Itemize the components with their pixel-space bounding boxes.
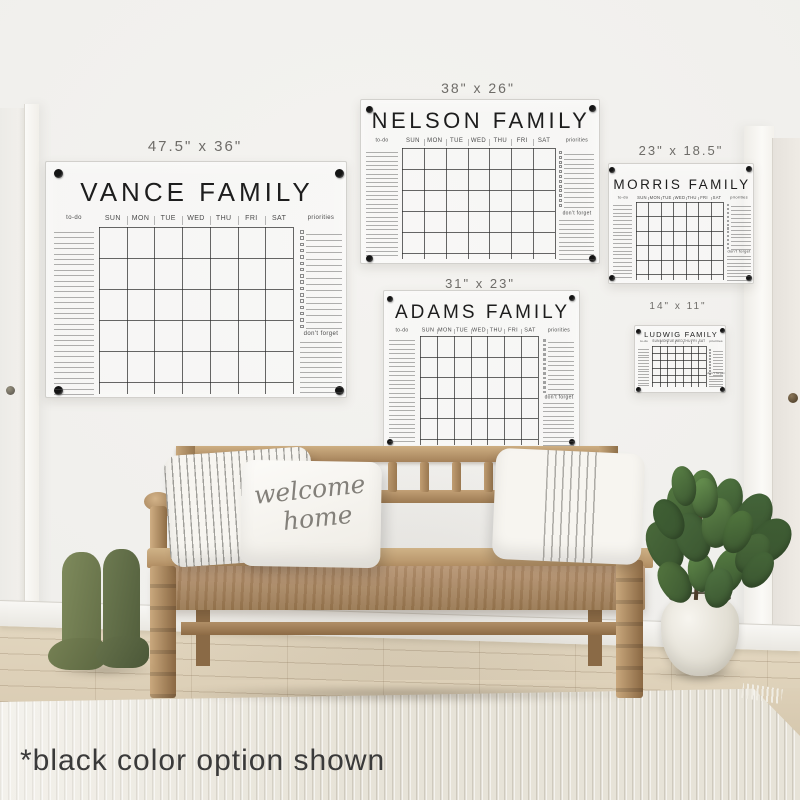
dont-forget-line — [543, 416, 574, 417]
todo-line — [638, 363, 649, 364]
dont-forget-line — [559, 259, 594, 260]
day-label: SAT — [272, 215, 286, 222]
priority-checkbox — [727, 216, 729, 218]
dont-forget-line — [709, 379, 723, 380]
priority-line — [564, 202, 594, 203]
grid-column-line — [99, 227, 100, 394]
grid-column-line — [698, 202, 699, 280]
grid-row-line — [99, 289, 293, 290]
day-label: TUE — [668, 340, 675, 343]
todo-line — [613, 224, 632, 225]
day-separator — [698, 341, 699, 344]
dont-forget-line — [559, 254, 594, 255]
todo-line — [54, 259, 94, 260]
grid-column-line — [454, 336, 455, 445]
day-separator — [698, 197, 699, 200]
day-separator — [487, 329, 488, 334]
grid-column-line — [691, 346, 692, 387]
priority-line — [713, 360, 723, 361]
left-door-frame — [24, 104, 39, 644]
dont-forget-line — [559, 242, 594, 243]
dont-forget-line — [559, 237, 594, 238]
todo-line — [54, 237, 94, 238]
priority-checkbox — [727, 239, 729, 241]
day-separator — [265, 216, 266, 225]
mount-dot — [54, 169, 63, 178]
welcome-home-text: welcome home — [239, 468, 384, 540]
todo-line — [366, 255, 398, 256]
todo-line — [366, 238, 398, 239]
todo-line — [389, 410, 415, 411]
todo-line — [613, 216, 632, 217]
priorities-label: priorities — [565, 138, 587, 143]
calendar-panel-morris: MORRIS FAMILYSUNMONTUEWEDTHUFRISATto-dop… — [608, 163, 754, 284]
priority-checkbox — [559, 175, 562, 178]
grid-column-line — [652, 346, 653, 387]
dont-forget-line — [543, 437, 574, 438]
day-label: THU — [216, 215, 232, 222]
priority-line — [713, 351, 723, 352]
priority-checkbox — [709, 349, 711, 351]
todo-line — [638, 385, 649, 386]
priority-checkbox — [300, 325, 304, 329]
day-separator — [504, 329, 505, 334]
boot-right-foot — [96, 636, 149, 668]
priority-line — [306, 315, 343, 316]
priority-line — [548, 356, 574, 357]
todo-line — [613, 258, 632, 259]
priority-checkbox — [559, 156, 562, 159]
day-label: SAT — [712, 196, 721, 200]
priority-checkbox — [300, 268, 304, 272]
priority-line — [731, 230, 751, 231]
day-separator — [489, 139, 490, 146]
day-separator — [691, 341, 692, 344]
day-label: MON — [438, 328, 452, 334]
todo-line — [638, 360, 649, 361]
todo-line — [54, 291, 94, 292]
dont-forget-line — [543, 428, 574, 429]
pillow-striped-right — [492, 448, 646, 565]
dont-forget-line — [727, 276, 751, 277]
calendar-title: NELSON FAMILY — [372, 108, 591, 134]
todo-line — [54, 318, 94, 319]
dont-forget-line — [727, 263, 751, 264]
day-separator — [675, 341, 676, 344]
todo-line — [638, 369, 649, 370]
priority-line — [713, 369, 723, 370]
grid-column-line — [154, 227, 155, 394]
todo-line — [54, 367, 94, 368]
todo-line — [389, 428, 415, 429]
priority-line — [306, 322, 343, 323]
mount-dot — [335, 169, 344, 178]
dont-forget-line — [559, 233, 594, 234]
priority-checkbox — [727, 220, 729, 222]
mount-dot — [720, 328, 725, 333]
calendar-size-label: 14" x 11" — [649, 301, 706, 312]
dont-forget-line — [559, 224, 594, 225]
priority-checkbox — [727, 204, 729, 206]
todo-line — [366, 186, 398, 187]
priority-checkbox — [543, 386, 546, 389]
priority-line — [713, 354, 723, 355]
todo-line — [54, 362, 94, 363]
day-label: SAT — [538, 138, 550, 144]
grid-column-line — [706, 346, 707, 387]
priority-line — [731, 245, 751, 246]
todo-line — [366, 229, 398, 230]
day-label: THU — [687, 196, 696, 200]
dont-forget-line — [300, 382, 342, 383]
todo-line — [613, 205, 632, 206]
priority-line — [548, 370, 574, 371]
todo-line — [54, 351, 94, 352]
priority-line — [731, 218, 751, 219]
todo-label: to-do — [617, 196, 627, 200]
todo-line — [366, 152, 398, 153]
day-separator — [648, 197, 649, 200]
priority-line — [731, 237, 751, 238]
grid-column-line — [487, 336, 488, 445]
mount-dot — [636, 387, 641, 392]
priority-line — [713, 363, 723, 364]
todo-line — [638, 357, 649, 358]
day-separator — [182, 216, 183, 225]
todo-line — [54, 286, 94, 287]
todo-line — [54, 394, 94, 395]
todo-line — [366, 251, 398, 252]
todo-line — [389, 397, 415, 398]
priority-checkbox — [543, 353, 546, 356]
priority-checkbox — [300, 243, 304, 247]
todo-line — [613, 232, 632, 233]
priority-line — [306, 309, 343, 310]
priority-checkbox — [727, 224, 729, 226]
todo-line — [389, 349, 415, 350]
todo-line — [366, 178, 398, 179]
priority-checkbox — [543, 381, 546, 384]
calendar-title: ADAMS FAMILY — [395, 302, 570, 324]
todo-line — [54, 383, 94, 384]
day-label: TUE — [662, 196, 671, 200]
day-separator — [471, 329, 472, 334]
todo-line — [389, 388, 415, 389]
priority-checkbox — [559, 194, 562, 197]
day-separator — [661, 197, 662, 200]
grid-column-line — [504, 336, 505, 445]
priority-checkbox — [709, 358, 711, 360]
dont-forget-line — [300, 347, 342, 348]
day-separator — [437, 329, 438, 334]
todo-line — [366, 242, 398, 243]
todo-line — [389, 340, 415, 341]
todo-line — [54, 308, 94, 309]
todo-line — [389, 375, 415, 376]
priority-checkbox — [727, 231, 729, 233]
grid-column-line — [673, 202, 674, 280]
priorities-label: priorities — [308, 215, 335, 221]
todo-line — [638, 355, 649, 356]
todo-line — [366, 217, 398, 218]
grid-column-line — [468, 148, 469, 259]
grid-column-line — [636, 202, 637, 280]
grid-column-line — [667, 346, 668, 387]
grid-column-line — [533, 148, 534, 259]
day-separator — [424, 139, 425, 146]
todo-line — [54, 254, 94, 255]
bench-front-leg-right — [616, 560, 643, 698]
todo-line — [54, 302, 94, 303]
day-label: SUN — [652, 340, 659, 343]
day-label: TUE — [161, 215, 176, 222]
mount-dot — [387, 296, 393, 302]
priority-checkbox — [709, 361, 711, 363]
calendar-title: VANCE FAMILY — [80, 177, 313, 208]
priority-line — [306, 297, 343, 298]
priority-checkbox — [543, 372, 546, 375]
priority-checkbox — [543, 363, 546, 366]
grid-row-line — [99, 382, 293, 383]
priority-checkbox — [559, 180, 562, 183]
calendar-panel-ludwig: LUDWIG FAMILYSUNMONTUEWEDTHUFRISATto-dop… — [634, 325, 726, 393]
todo-line — [54, 329, 94, 330]
day-separator — [683, 341, 684, 344]
dont-forget-line — [300, 387, 342, 388]
priority-line — [306, 284, 343, 285]
priorities-label: priorities — [730, 196, 748, 200]
dont-forget-line — [300, 352, 342, 353]
priority-checkbox — [709, 352, 711, 354]
todo-line — [54, 313, 94, 314]
todo-line — [366, 208, 398, 209]
todo-line — [54, 389, 94, 390]
priority-line — [731, 214, 751, 215]
priority-line — [564, 178, 594, 179]
todo-line — [366, 174, 398, 175]
priority-line — [564, 164, 594, 165]
todo-line — [613, 243, 632, 244]
dont-forget-line — [559, 229, 594, 230]
priority-line — [306, 240, 343, 241]
calendar-size-label: 23" x 18.5" — [639, 143, 724, 158]
priority-checkbox — [727, 243, 729, 245]
dont-forget-label: don't forget — [304, 331, 339, 337]
todo-line — [366, 182, 398, 183]
priority-line — [306, 278, 343, 279]
todo-line — [389, 362, 415, 363]
todo-line — [54, 345, 94, 346]
grid-column-line — [446, 148, 447, 259]
todo-line — [366, 165, 398, 166]
priority-checkbox — [559, 165, 562, 168]
day-label: FRI — [517, 138, 528, 144]
priority-line — [564, 192, 594, 193]
priority-line — [306, 303, 343, 304]
todo-line — [389, 415, 415, 416]
todo-label: to-do — [375, 138, 388, 143]
grid-column-line — [538, 336, 539, 445]
calendar-panel-nelson: NELSON FAMILYSUNMONTUEWEDTHUFRISATto-dop… — [360, 99, 600, 264]
priority-line — [731, 234, 751, 235]
grid-column-line — [521, 336, 522, 445]
day-label: WED — [187, 215, 205, 222]
bench-spindle — [452, 462, 461, 492]
day-label: FRI — [701, 196, 709, 200]
priority-checkbox — [300, 280, 304, 284]
bench-spindle — [420, 462, 429, 492]
day-separator — [454, 329, 455, 334]
dont-forget-label: don't forget — [562, 211, 591, 216]
todo-line — [389, 384, 415, 385]
mount-dot — [746, 166, 752, 172]
day-label: FRI — [692, 340, 698, 343]
grid-column-line — [127, 227, 128, 394]
grid-column-line — [555, 148, 556, 259]
day-label: WED — [674, 196, 685, 200]
day-label: SUN — [406, 138, 420, 144]
day-label: FRI — [245, 215, 257, 222]
todo-line — [613, 266, 632, 267]
dont-forget-label: don't forget — [727, 250, 750, 254]
todo-line — [389, 424, 415, 425]
grid-column-line — [420, 336, 421, 445]
dont-forget-line — [709, 384, 723, 385]
dont-forget-line — [559, 220, 594, 221]
dont-forget-line — [543, 420, 574, 421]
dont-forget-line — [300, 362, 342, 363]
todo-line — [389, 402, 415, 403]
dont-forget-line — [300, 372, 342, 373]
todo-line — [54, 243, 94, 244]
day-separator — [446, 139, 447, 146]
day-label: WED — [472, 328, 486, 334]
priority-checkbox — [559, 185, 562, 188]
priority-line — [564, 154, 594, 155]
todo-line — [54, 340, 94, 341]
priority-line — [548, 384, 574, 385]
pillow-stripe-band — [542, 450, 600, 563]
grid-column-line — [686, 202, 687, 280]
priority-checkbox — [727, 208, 729, 210]
grid-column-line — [238, 227, 239, 394]
grid-row-line — [99, 320, 293, 321]
day-label: SAT — [524, 328, 535, 334]
dont-forget-line — [300, 392, 342, 393]
priority-checkbox — [300, 299, 304, 303]
priority-checkbox — [559, 161, 562, 164]
day-separator — [127, 216, 128, 225]
priority-checkbox — [300, 306, 304, 310]
priority-checkbox — [727, 212, 729, 214]
todo-line — [389, 366, 415, 367]
bench-spindle — [388, 462, 397, 492]
grid-header-line — [99, 227, 293, 228]
priority-line — [306, 290, 343, 291]
priority-checkbox — [300, 318, 304, 322]
grid-column-line — [265, 227, 266, 394]
day-label: SUN — [105, 215, 121, 222]
todo-line — [613, 209, 632, 210]
todo-line — [366, 195, 398, 196]
grid-column-line — [489, 148, 490, 259]
grid-column-line — [424, 148, 425, 259]
priority-line — [306, 328, 343, 329]
day-separator — [468, 139, 469, 146]
grid-column-line — [711, 202, 712, 280]
priority-line — [731, 226, 751, 227]
dont-forget-line — [543, 424, 574, 425]
todo-line — [54, 356, 94, 357]
bench-floor-shadow — [165, 684, 645, 704]
todo-line — [389, 419, 415, 420]
priority-line — [564, 183, 594, 184]
priority-checkbox — [727, 247, 729, 249]
dont-forget-line — [709, 376, 723, 377]
todo-line — [389, 441, 415, 442]
calendar-size-label: 31" x 23" — [445, 276, 515, 291]
dont-forget-line — [543, 403, 574, 404]
day-label: MON — [660, 340, 668, 343]
calendar-panel-adams: ADAMS FAMILYSUNMONTUEWEDTHUFRISATto-dopr… — [383, 290, 580, 448]
todo-line — [389, 437, 415, 438]
priority-line — [548, 361, 574, 362]
dont-forget-line — [300, 342, 342, 343]
priority-line — [564, 207, 594, 208]
priority-checkbox — [300, 262, 304, 266]
todo-line — [54, 324, 94, 325]
left-door-knob — [6, 386, 15, 395]
todo-line — [366, 156, 398, 157]
priority-line — [713, 366, 723, 367]
priority-checkbox — [300, 312, 304, 316]
dont-forget-line — [300, 357, 342, 358]
todo-line — [366, 199, 398, 200]
todo-line — [54, 378, 94, 379]
grid-column-line — [723, 202, 724, 280]
day-separator — [238, 216, 239, 225]
priority-checkbox — [727, 235, 729, 237]
priority-line — [564, 173, 594, 174]
priority-line — [306, 271, 343, 272]
grid-column-line — [661, 202, 662, 280]
priority-line — [548, 379, 574, 380]
bench-seat-front — [155, 566, 645, 610]
dont-forget-line — [727, 273, 751, 274]
dont-forget-line — [727, 259, 751, 260]
todo-line — [613, 239, 632, 240]
todo-line — [54, 275, 94, 276]
todo-line — [366, 204, 398, 205]
todo-line — [613, 213, 632, 214]
entryway-scene: 47.5" x 36"VANCE FAMILYSUNMONTUEWEDTHUFR… — [0, 0, 800, 800]
todo-line — [54, 335, 94, 336]
priority-line — [564, 159, 594, 160]
dont-forget-line — [543, 432, 574, 433]
todo-line — [638, 349, 649, 350]
right-door-knob — [788, 393, 798, 403]
dont-forget-line — [709, 381, 723, 382]
todo-line — [638, 380, 649, 381]
grid-column-line — [293, 227, 294, 394]
left-door — [0, 108, 26, 640]
day-separator — [511, 139, 512, 146]
todo-line — [638, 366, 649, 367]
todo-line — [54, 248, 94, 249]
dont-forget-line — [543, 411, 574, 412]
todo-line — [389, 358, 415, 359]
day-separator — [711, 197, 712, 200]
